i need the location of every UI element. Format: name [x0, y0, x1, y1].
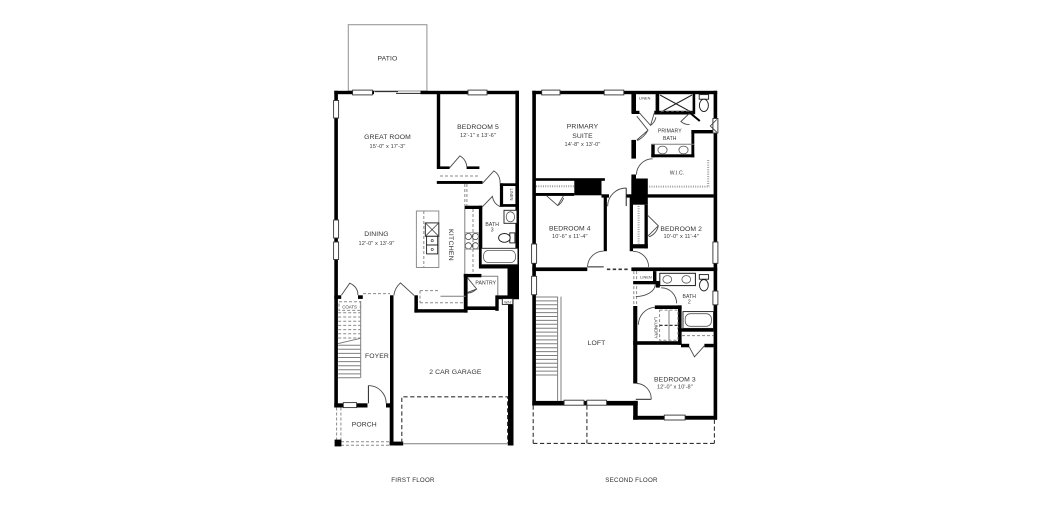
svg-text:PRIMARY: PRIMARY: [658, 129, 682, 135]
svg-text:W.I.C.: W.I.C.: [670, 170, 684, 176]
svg-text:GREAT ROOM: GREAT ROOM: [364, 134, 411, 141]
svg-text:SUITE: SUITE: [572, 133, 593, 140]
svg-text:BEDROOM 5: BEDROOM 5: [457, 124, 499, 131]
svg-text:LAUNDRY: LAUNDRY: [654, 317, 659, 339]
svg-text:COATS: COATS: [342, 304, 357, 309]
svg-text:LINEN: LINEN: [640, 275, 652, 280]
svg-text:FIRST FLOOR: FIRST FLOOR: [391, 477, 435, 484]
svg-text:BEDROOM 2: BEDROOM 2: [660, 226, 702, 233]
svg-text:PRIMARY: PRIMARY: [567, 124, 599, 131]
svg-text:LINEN: LINEN: [639, 96, 651, 101]
svg-text:BATH: BATH: [663, 136, 677, 142]
svg-text:FOYER: FOYER: [365, 353, 389, 360]
svg-text:SECOND FLOOR: SECOND FLOOR: [605, 477, 658, 484]
svg-text:12'-1" x 13'-6": 12'-1" x 13'-6": [460, 133, 496, 139]
svg-text:2: 2: [688, 299, 691, 305]
svg-text:PANTRY: PANTRY: [475, 280, 496, 286]
svg-text:10'-0" x 11'-4": 10'-0" x 11'-4": [663, 234, 699, 240]
svg-text:BEDROOM 3: BEDROOM 3: [654, 377, 696, 384]
svg-text:W/H: W/H: [504, 300, 511, 304]
svg-text:DINING: DINING: [364, 231, 388, 238]
svg-text:3: 3: [491, 228, 494, 234]
svg-text:KITCHEN: KITCHEN: [447, 229, 454, 261]
svg-text:LINEN: LINEN: [509, 188, 514, 200]
svg-text:10'-6" x 11'-4": 10'-6" x 11'-4": [552, 234, 588, 240]
svg-text:BEDROOM 4: BEDROOM 4: [549, 226, 591, 233]
svg-text:2 CAR GARAGE: 2 CAR GARAGE: [429, 369, 482, 376]
svg-text:14'-8" x 13'-0": 14'-8" x 13'-0": [565, 142, 601, 148]
svg-text:12'-0" x 13'-9": 12'-0" x 13'-9": [359, 241, 395, 247]
svg-text:15'-0" x 17'-3": 15'-0" x 17'-3": [370, 144, 406, 150]
svg-text:LOFT: LOFT: [588, 340, 606, 347]
svg-text:PATIO: PATIO: [378, 56, 398, 63]
svg-text:12'-0" x 10'-8": 12'-0" x 10'-8": [657, 384, 693, 390]
svg-text:PORCH: PORCH: [352, 422, 377, 429]
